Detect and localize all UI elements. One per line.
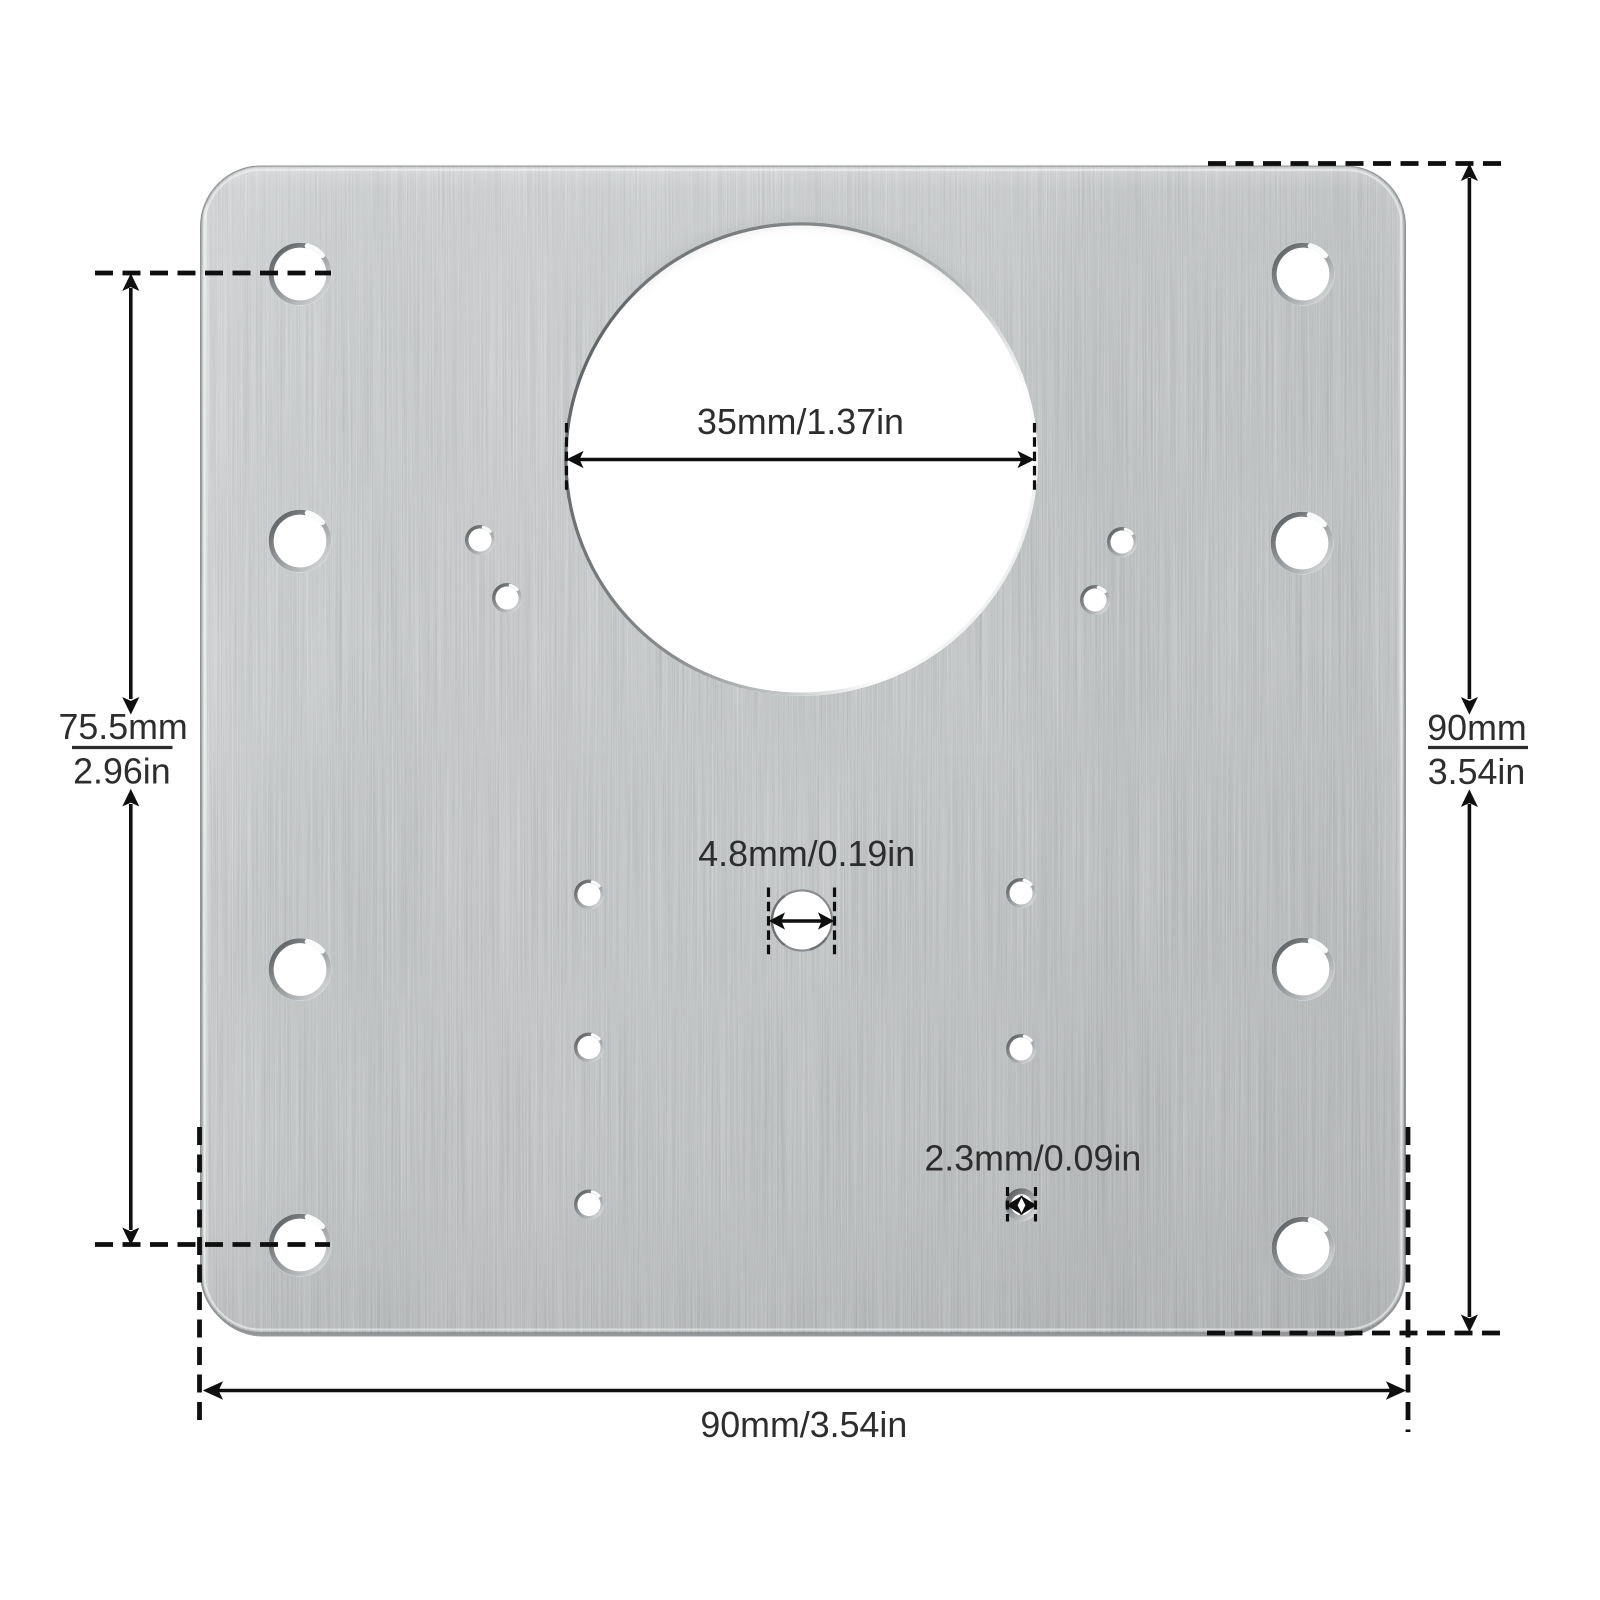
svg-text:75.5mm: 75.5mm <box>58 707 187 747</box>
svg-text:35mm/1.37in: 35mm/1.37in <box>697 402 904 442</box>
svg-text:3.54in: 3.54in <box>1428 752 1526 792</box>
svg-text:2.96in: 2.96in <box>73 752 171 792</box>
svg-text:90mm/3.54in: 90mm/3.54in <box>700 1405 907 1445</box>
svg-text:4.8mm/0.19in: 4.8mm/0.19in <box>698 834 915 874</box>
svg-text:2.3mm/0.09in: 2.3mm/0.09in <box>924 1139 1141 1179</box>
svg-text:90mm: 90mm <box>1427 708 1526 748</box>
